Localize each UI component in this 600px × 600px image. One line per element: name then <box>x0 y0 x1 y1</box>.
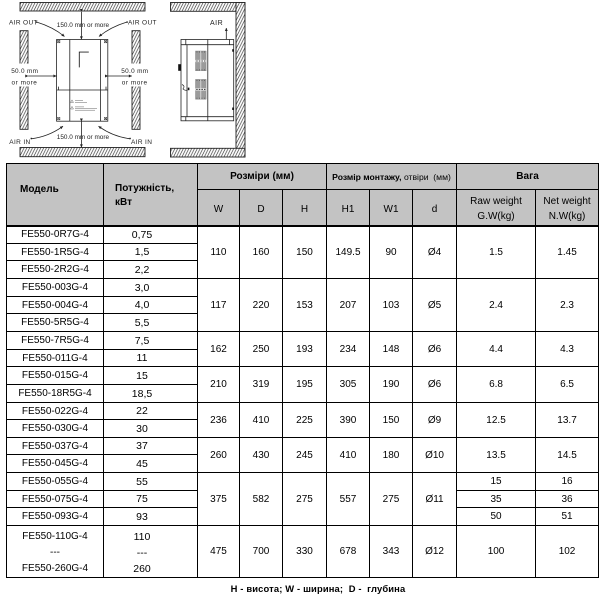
svg-text:50.0 mm: 50.0 mm <box>11 68 38 75</box>
svg-text:or more: or more <box>12 79 38 86</box>
svg-text:AIR IN: AIR IN <box>131 139 152 146</box>
svg-text:AIR OUT: AIR OUT <box>128 20 157 27</box>
svg-text:150.0 mm or more: 150.0 mm or more <box>57 22 110 29</box>
svg-text:AIR: AIR <box>210 20 223 27</box>
svg-text:AIR IN: AIR IN <box>9 139 30 146</box>
svg-text:or more: or more <box>122 79 148 86</box>
svg-text:50.0 mm: 50.0 mm <box>121 68 148 75</box>
svg-text:150.0 mm or more: 150.0 mm or more <box>57 134 110 141</box>
svg-text:AIR OUT: AIR OUT <box>9 20 38 27</box>
